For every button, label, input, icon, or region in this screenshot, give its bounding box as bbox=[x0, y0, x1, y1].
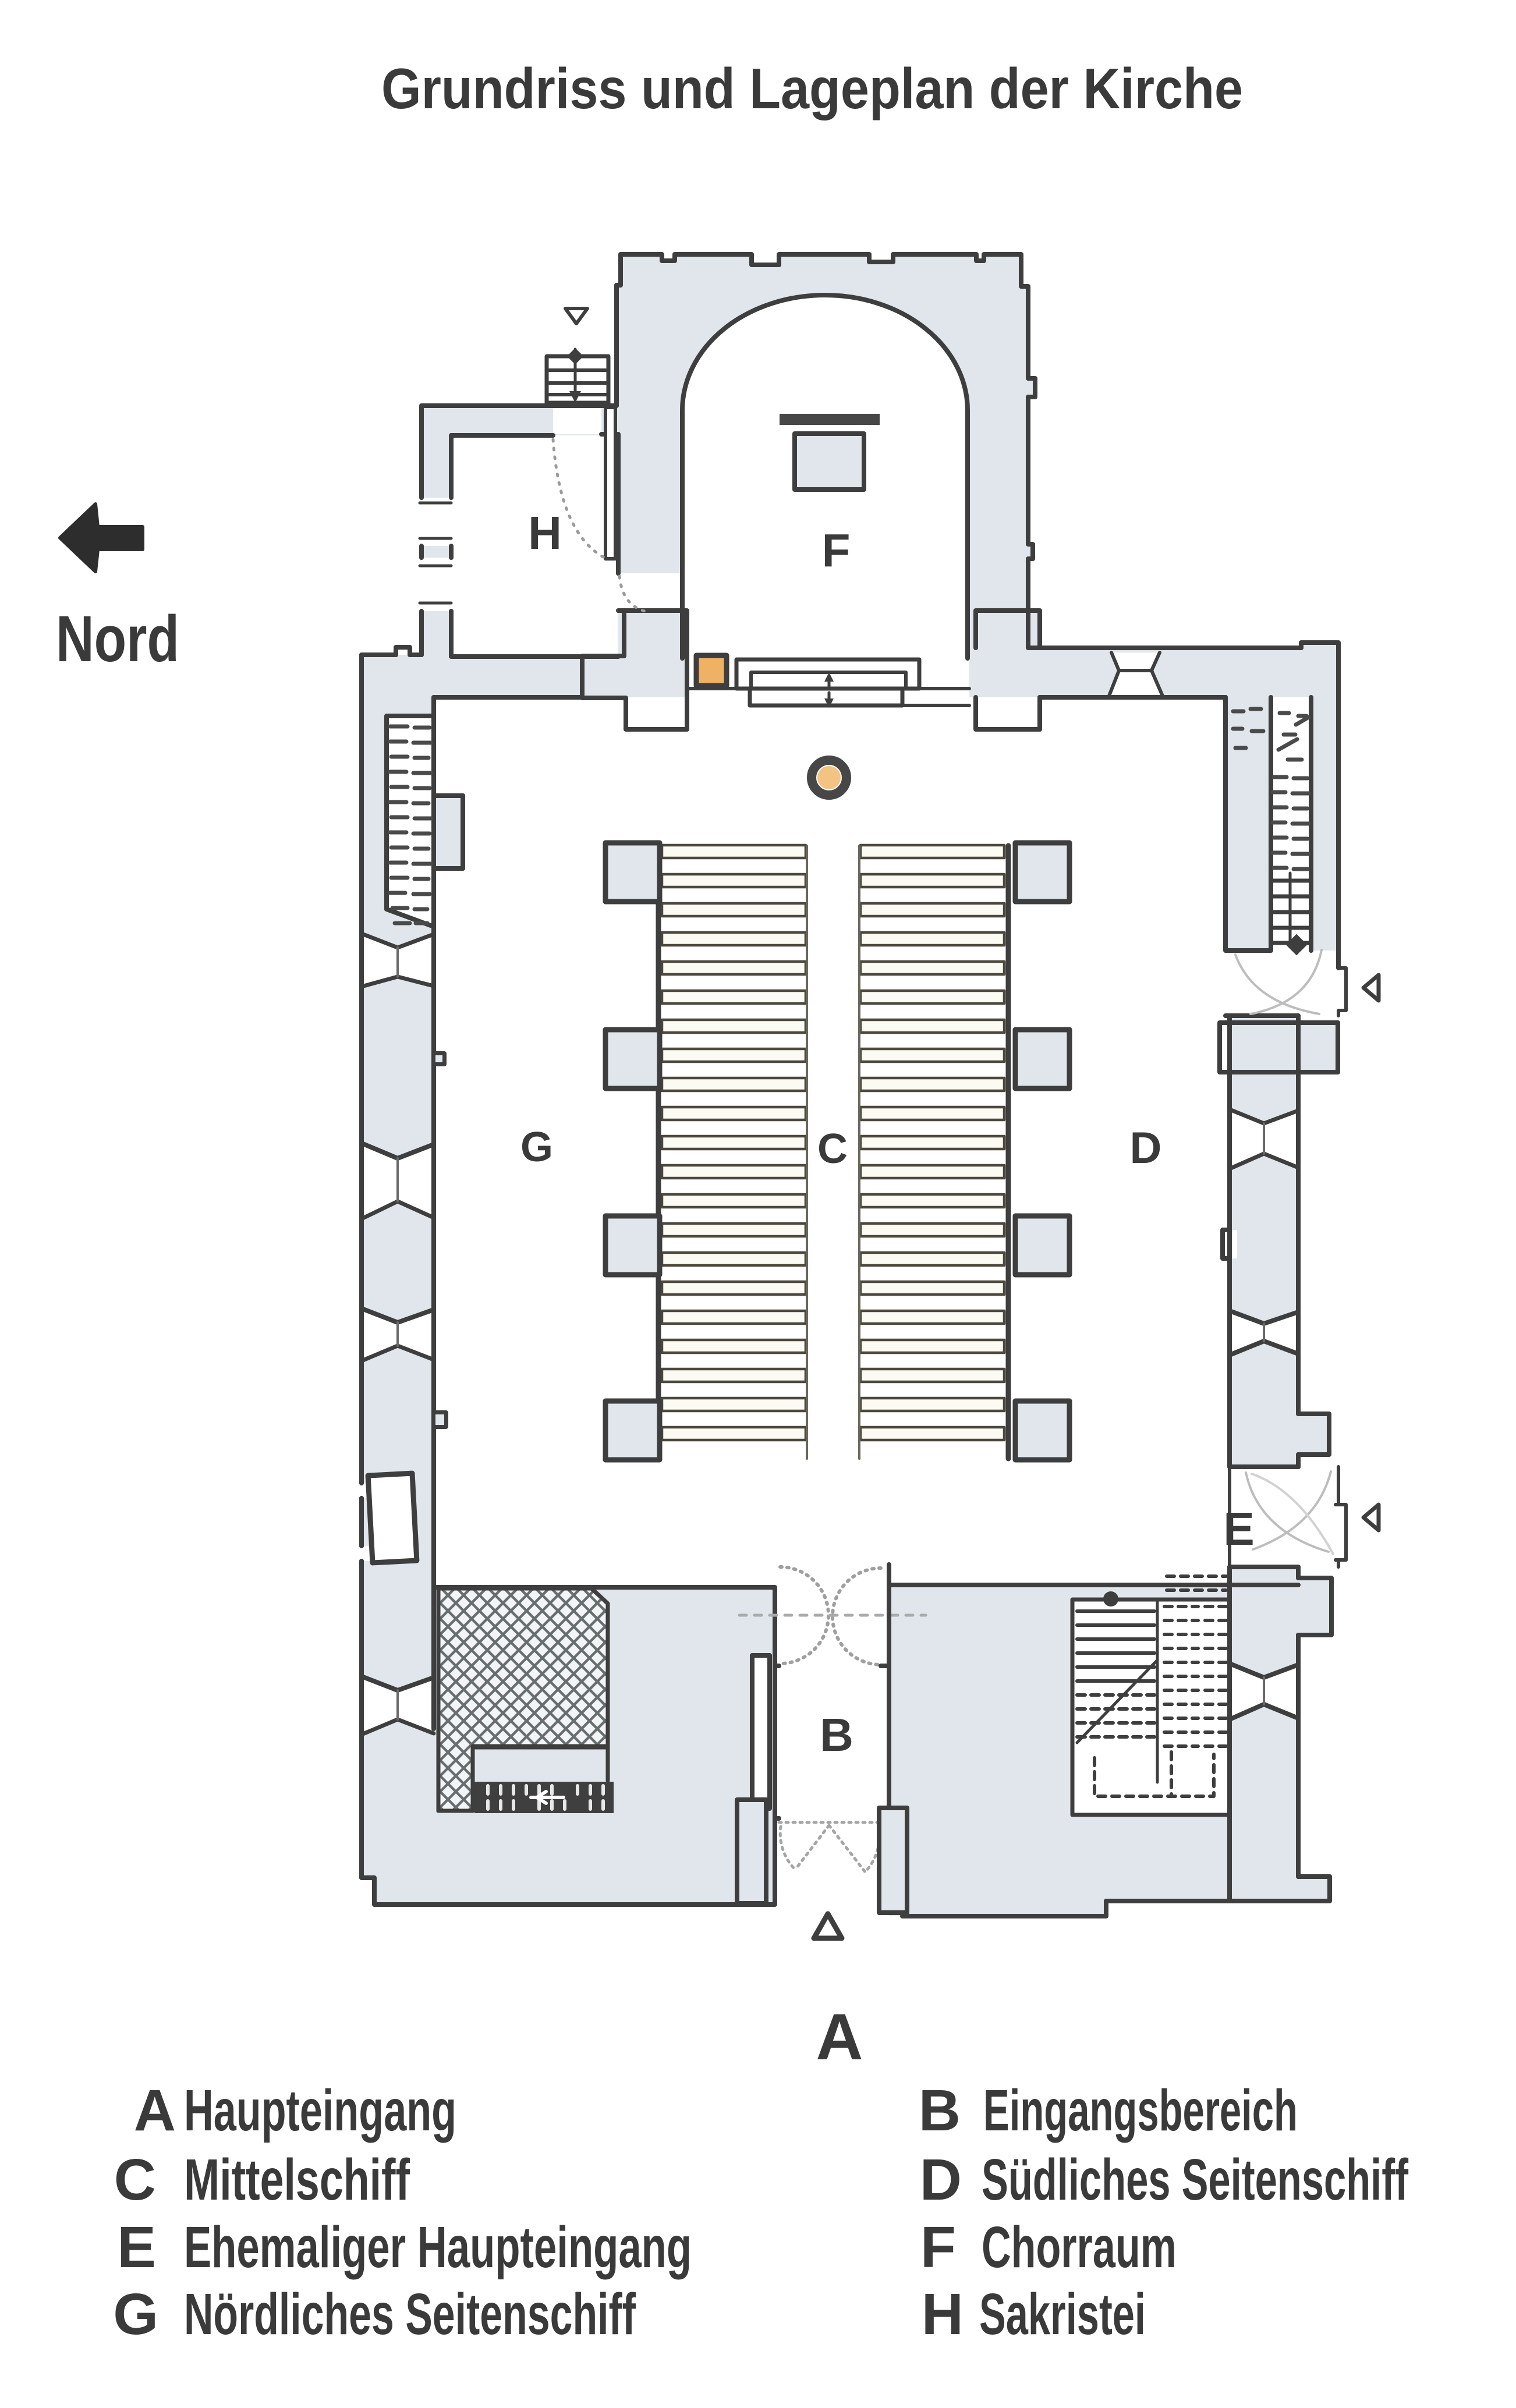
svg-text:D: D bbox=[1130, 1123, 1162, 1173]
svg-text:Eingangsbereich: Eingangsbereich bbox=[983, 2078, 1298, 2143]
svg-text:Nördliches Seitenschiff: Nördliches Seitenschiff bbox=[184, 2282, 636, 2347]
svg-text:C: C bbox=[817, 1126, 848, 1172]
svg-text:Grundriss und Lageplan der Kir: Grundriss und Lageplan der Kirche bbox=[381, 56, 1243, 120]
svg-text:Nord: Nord bbox=[56, 602, 179, 675]
svg-text:C: C bbox=[114, 2147, 156, 2212]
svg-text:Haupteingang: Haupteingang bbox=[184, 2078, 456, 2143]
svg-text:A: A bbox=[134, 2078, 176, 2143]
svg-text:Mittelschiff: Mittelschiff bbox=[184, 2147, 410, 2212]
svg-text:F: F bbox=[822, 524, 851, 576]
svg-text:D: D bbox=[920, 2147, 962, 2212]
svg-text:Ehemaliger Haupteingang: Ehemaliger Haupteingang bbox=[184, 2215, 692, 2280]
svg-text:B: B bbox=[820, 1709, 853, 1761]
svg-text:E: E bbox=[117, 2215, 156, 2280]
svg-text:E: E bbox=[1223, 1503, 1254, 1555]
svg-text:G: G bbox=[520, 1124, 553, 1171]
svg-text:H: H bbox=[922, 2282, 964, 2347]
svg-text:H: H bbox=[528, 507, 562, 559]
svg-text:Sakristei: Sakristei bbox=[979, 2282, 1146, 2347]
svg-text:B: B bbox=[919, 2078, 961, 2143]
svg-text:F: F bbox=[920, 2215, 956, 2280]
svg-text:Südliches Seitenschiff: Südliches Seitenschiff bbox=[982, 2147, 1408, 2212]
svg-text:Chorraum: Chorraum bbox=[982, 2215, 1177, 2280]
svg-text:G: G bbox=[113, 2282, 158, 2347]
svg-text:A: A bbox=[816, 2001, 863, 2073]
